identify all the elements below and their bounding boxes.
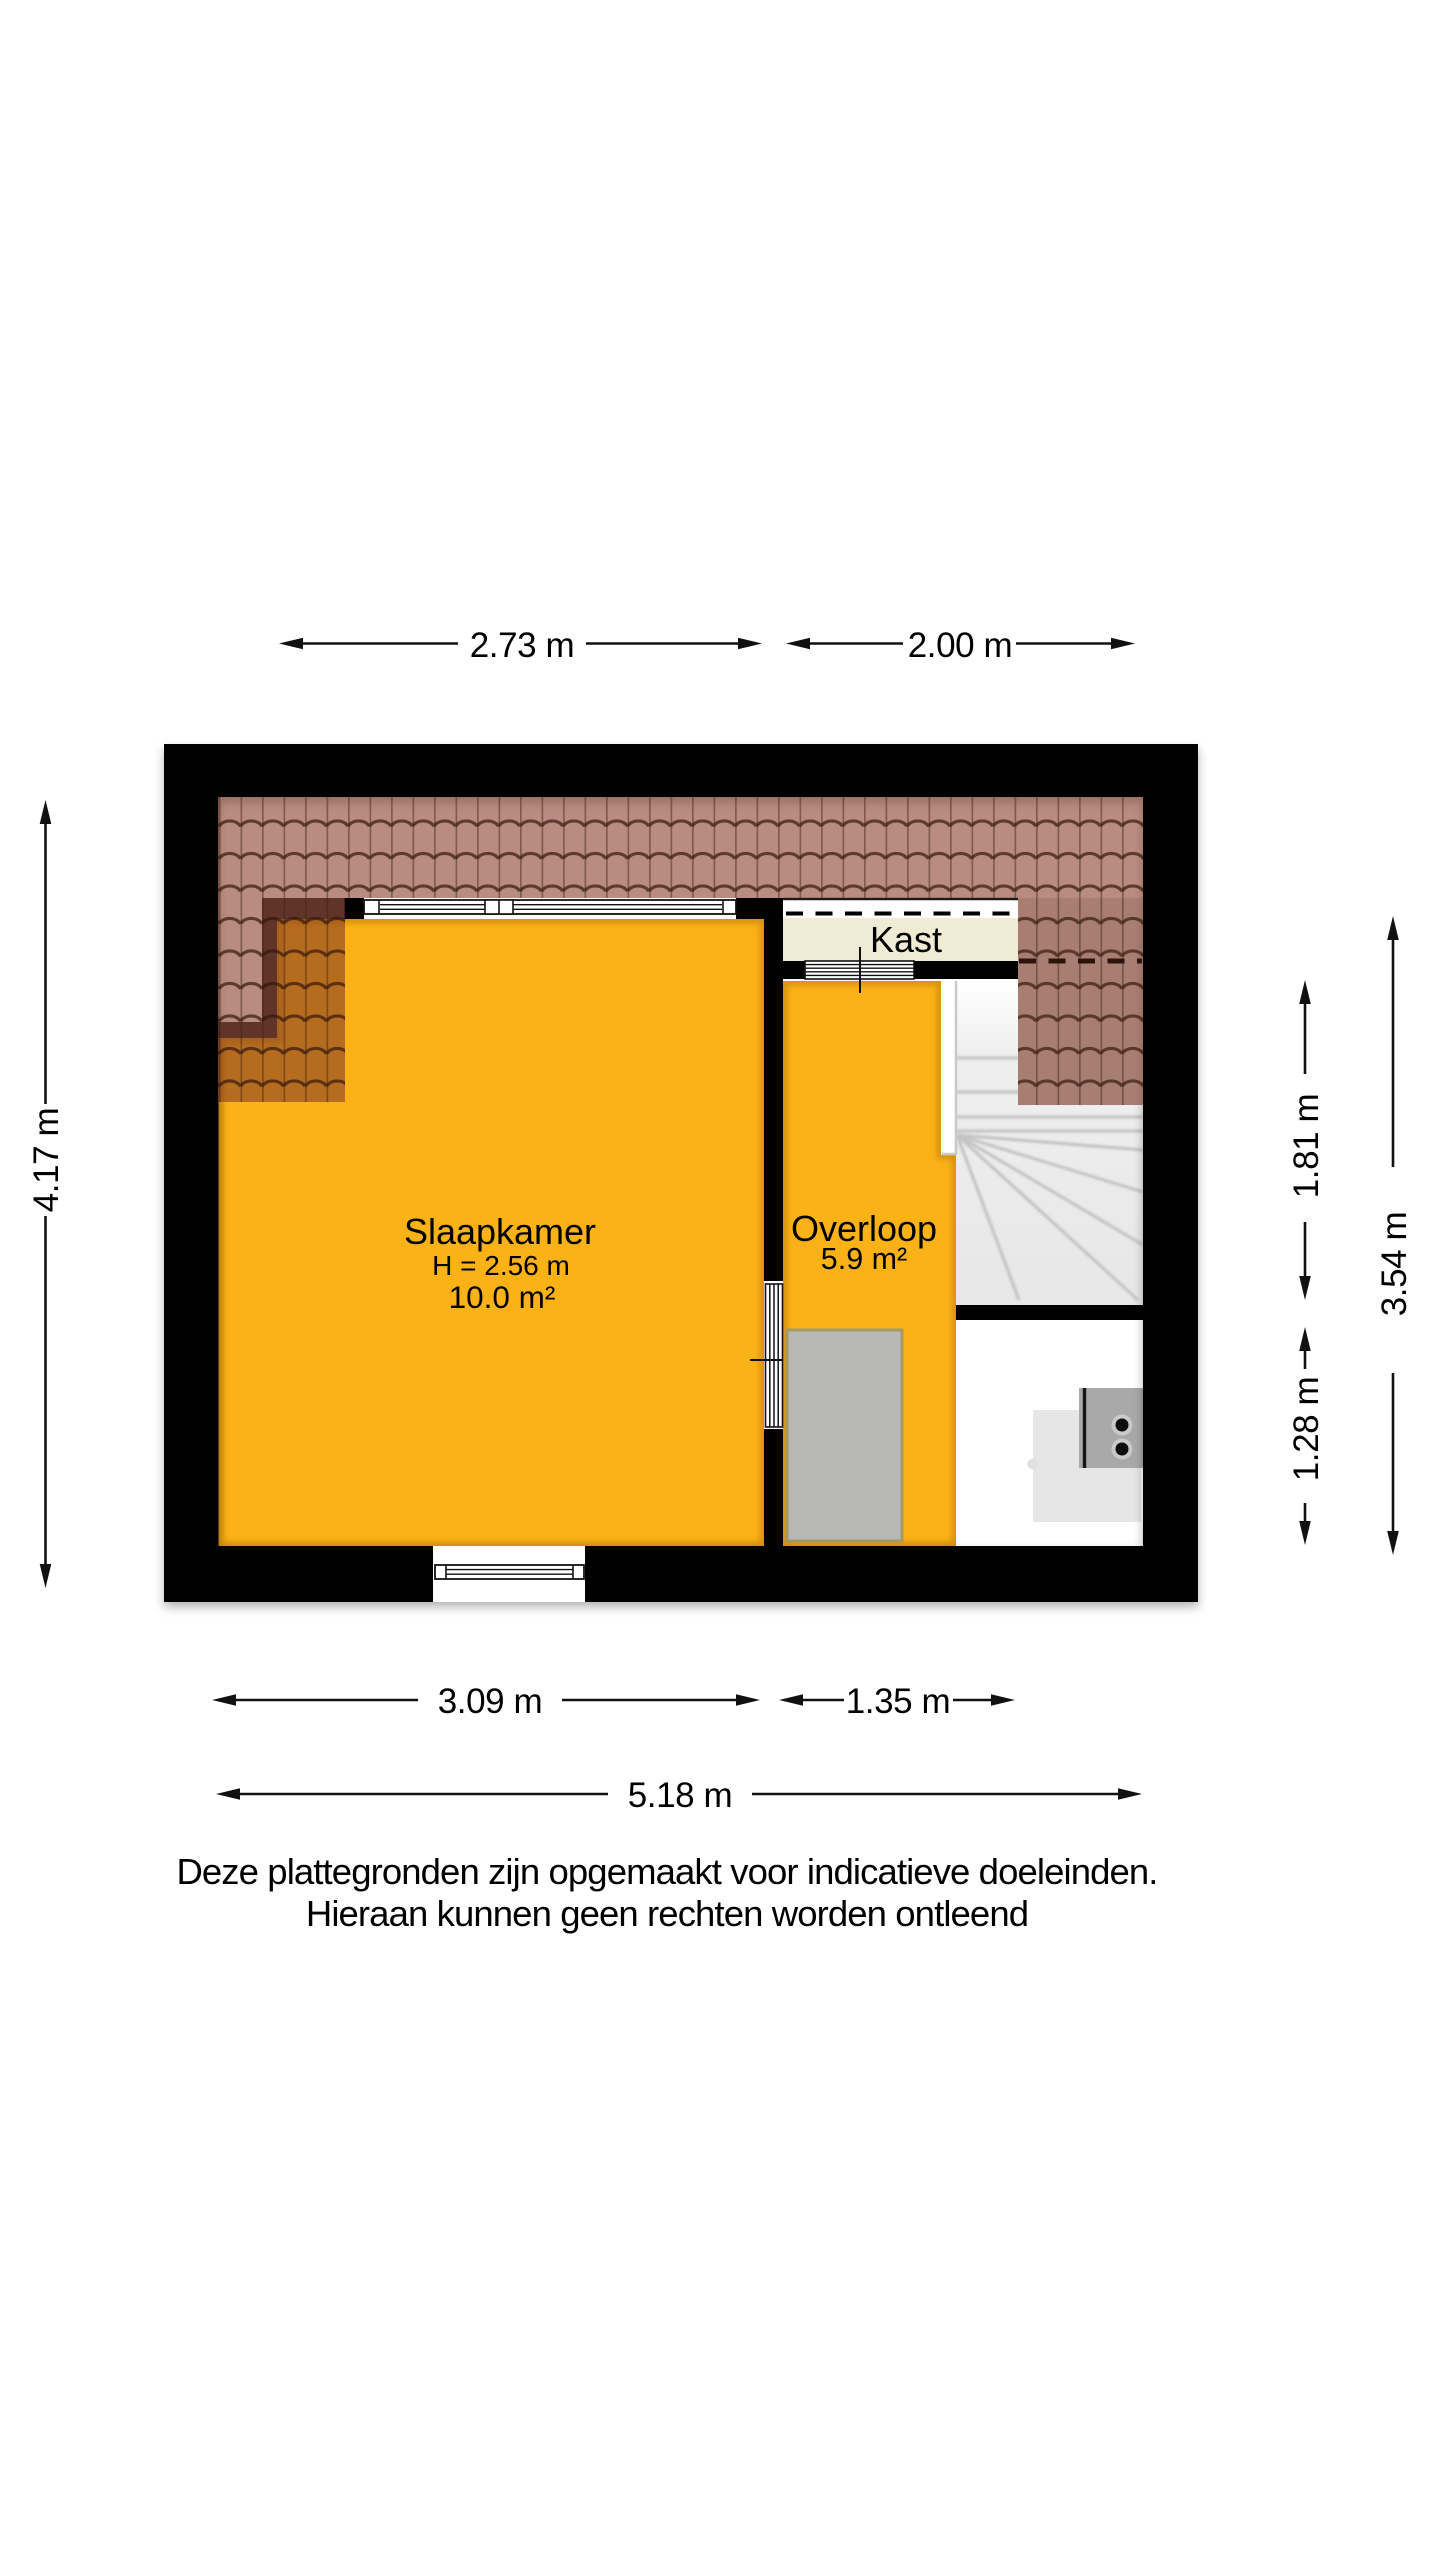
- svg-text:3.09 m: 3.09 m: [438, 1682, 543, 1721]
- svg-text:5.9 m²: 5.9 m²: [821, 1242, 907, 1276]
- svg-text:5.18 m: 5.18 m: [628, 1776, 733, 1815]
- svg-text:1.81 m: 1.81 m: [1287, 1094, 1326, 1199]
- svg-text:2.00 m: 2.00 m: [908, 626, 1013, 665]
- svg-text:2.73 m: 2.73 m: [470, 626, 575, 665]
- svg-text:Kast: Kast: [870, 919, 942, 960]
- svg-text:3.54 m: 3.54 m: [1375, 1212, 1414, 1317]
- svg-text:1.28 m: 1.28 m: [1287, 1377, 1326, 1482]
- svg-text:4.17 m: 4.17 m: [27, 1108, 66, 1213]
- svg-text:Hieraan kunnen geen rechten wo: Hieraan kunnen geen rechten worden ontle…: [306, 1893, 1028, 1934]
- svg-text:Slaapkamer: Slaapkamer: [404, 1211, 596, 1252]
- svg-text:10.0 m²: 10.0 m²: [449, 1279, 556, 1315]
- svg-text:Deze plattegronden zijn opgema: Deze plattegronden zijn opgemaakt voor i…: [176, 1851, 1157, 1892]
- svg-text:H = 2.56 m: H = 2.56 m: [432, 1250, 570, 1281]
- svg-text:1.35 m: 1.35 m: [846, 1682, 951, 1721]
